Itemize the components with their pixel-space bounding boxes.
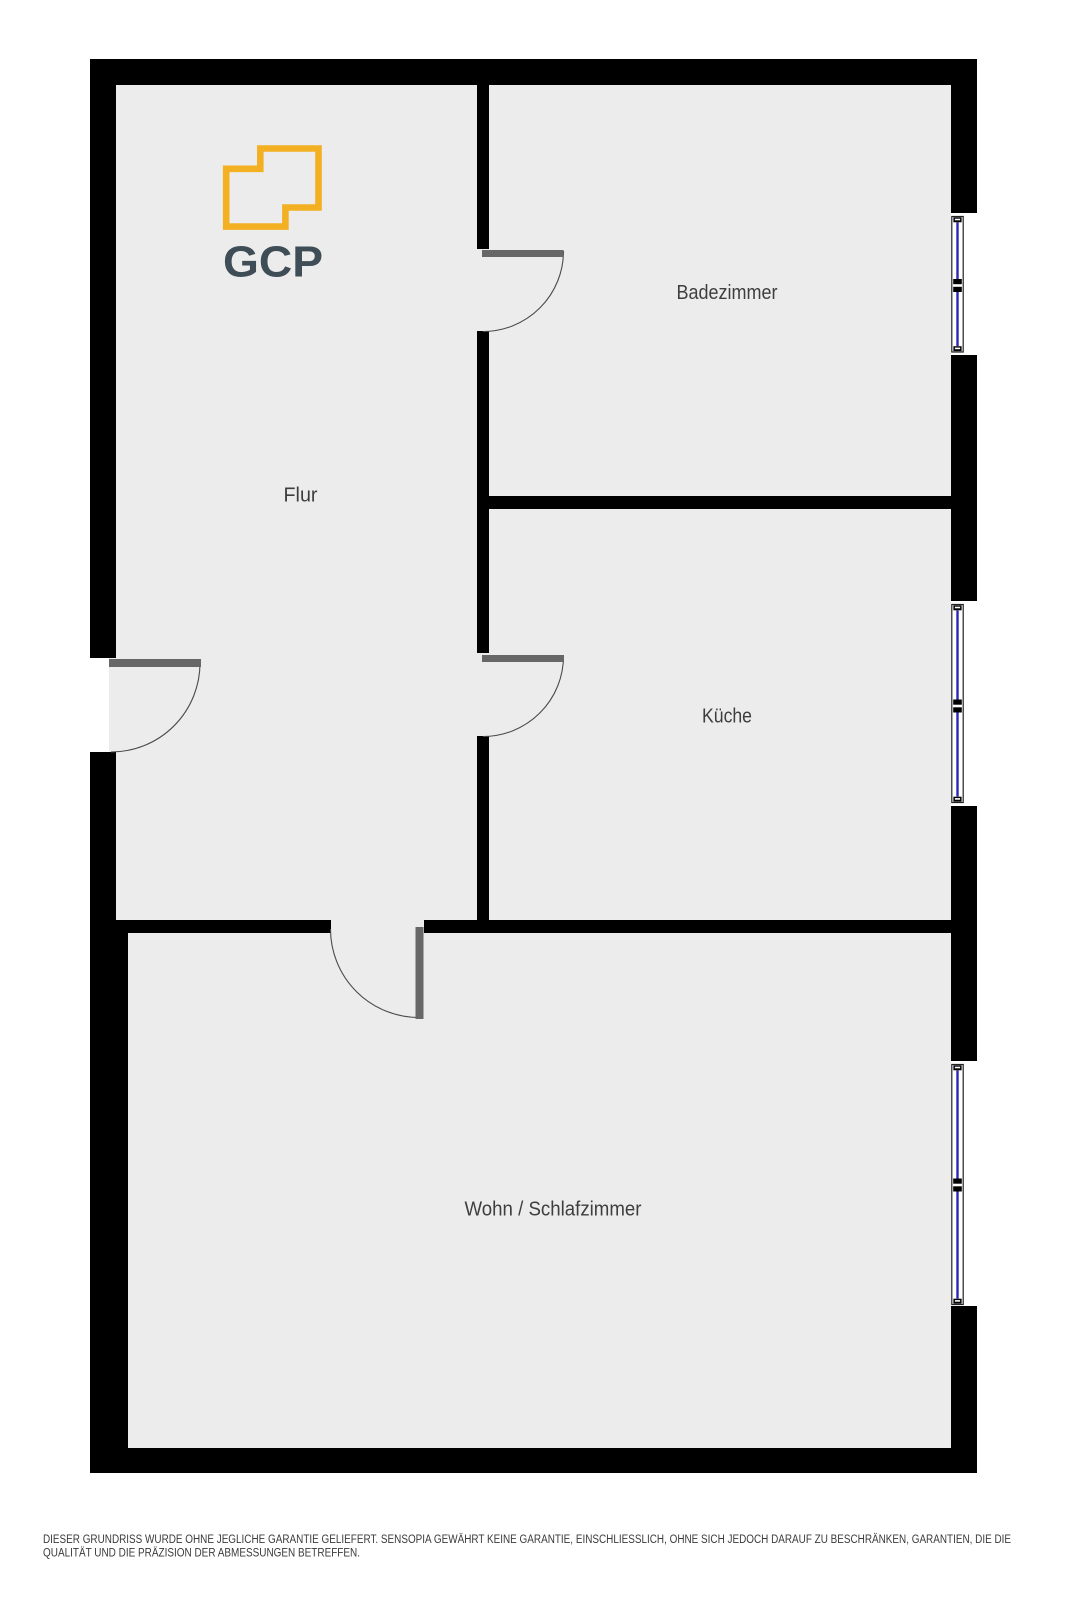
svg-text:Flur: Flur: [284, 485, 318, 507]
svg-text:DIESER GRUNDRISS WURDE OHNE JE: DIESER GRUNDRISS WURDE OHNE JEGLICHE GAR…: [43, 1532, 1011, 1546]
svg-text:Badezimmer: Badezimmer: [677, 282, 778, 304]
svg-text:GCP: GCP: [223, 238, 323, 286]
svg-text:QUALITÄT UND DIE PRÄZISION DER: QUALITÄT UND DIE PRÄZISION DER ABMESSUNG…: [43, 1546, 360, 1560]
svg-text:Wohn / Schlafzimmer: Wohn / Schlafzimmer: [465, 1199, 642, 1221]
svg-text:Küche: Küche: [702, 706, 752, 728]
